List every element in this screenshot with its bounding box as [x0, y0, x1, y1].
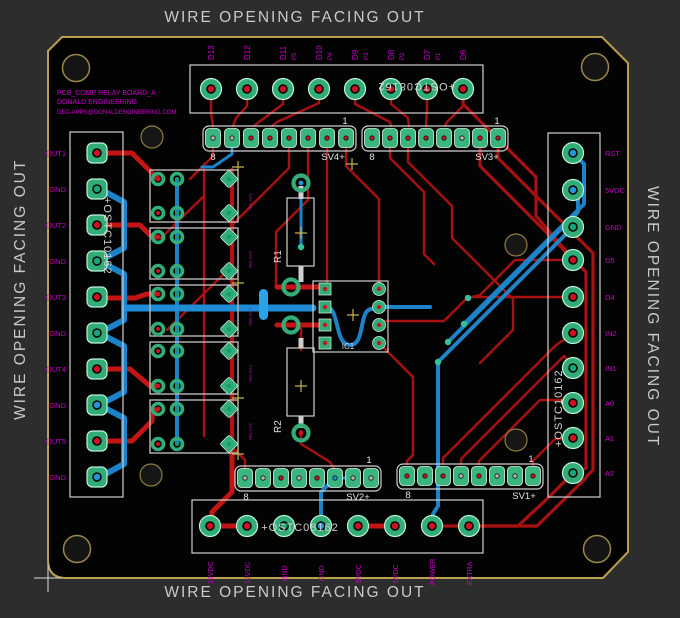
title-block-line1: PCB_COMP RELAY BOARD_A [57, 90, 156, 97]
svg-text:D5: D5 [605, 256, 615, 265]
sv1-pin1: 1 [528, 454, 533, 465]
svg-text:D11: D11 [279, 45, 288, 60]
svg-text:A1: A1 [605, 434, 614, 443]
sv2-pin1: 1 [366, 455, 371, 466]
svg-text:P1: P1 [436, 52, 442, 60]
svg-text:5VDC: 5VDC [605, 186, 626, 195]
svg-text:GND: GND [605, 223, 622, 232]
sv1-pin8: 8 [405, 490, 410, 501]
svg-text:EXTRA: EXTRA [467, 561, 474, 585]
svg-text:D7: D7 [423, 49, 432, 60]
edge-label-left: WIRE OPENING FACING OUT [12, 159, 29, 420]
svg-text:RELAY2: RELAY2 [248, 251, 253, 268]
svg-text:A2: A2 [605, 469, 614, 478]
sv2-pin8: 8 [243, 492, 248, 503]
svg-text:OUT5: OUT5 [46, 437, 66, 446]
svg-text:P2: P2 [400, 52, 406, 60]
svg-text:GND: GND [49, 329, 66, 338]
right-connector-part: +OSTC10162 [553, 369, 565, 447]
sv1-label: SV1+ [512, 491, 536, 502]
svg-text:A0: A0 [605, 399, 614, 408]
svg-text:GND: GND [49, 257, 66, 266]
svg-text:D13: D13 [207, 45, 216, 60]
svg-text:D4: D4 [605, 293, 615, 302]
ic1-designator: IC1 [342, 342, 355, 351]
svg-text:GND: GND [49, 401, 66, 410]
svg-text:IN1: IN1 [605, 364, 617, 373]
svg-text:OUT2: OUT2 [46, 221, 66, 230]
svg-text:GND: GND [49, 473, 66, 482]
svg-text:D8: D8 [387, 49, 396, 60]
title-block-line2: DONALD ENGINEERING [57, 99, 137, 106]
svg-text:RST: RST [605, 149, 620, 158]
pcb-layout-view: WIRE OPENING FACING OUT WIRE OPENING FAC… [0, 0, 680, 618]
top-connector-part: +OSTC08162 [377, 80, 455, 92]
svg-text:12VDC: 12VDC [208, 561, 215, 584]
edge-label-right: WIRE OPENING FACING OUT [644, 186, 661, 447]
svg-text:GND: GND [319, 565, 326, 581]
svg-text:RELAY3: RELAY3 [248, 308, 253, 325]
svg-text:P3: P3 [364, 52, 370, 60]
svg-text:RELAY5: RELAY5 [248, 423, 253, 440]
left-connector-part: +OSTC10162 [101, 197, 113, 275]
svg-text:GND: GND [49, 185, 66, 194]
r2-designator: R2 [273, 420, 284, 433]
svg-text:D6: D6 [459, 49, 468, 60]
svg-text:IN2: IN2 [605, 329, 617, 338]
svg-text:5VDC: 5VDC [393, 564, 400, 583]
svg-text:GND: GND [282, 565, 289, 581]
svg-text:P4: P4 [328, 52, 334, 60]
svg-text:OUT3: OUT3 [46, 293, 66, 302]
sv3-pin1: 1 [494, 116, 499, 127]
sv4-pin8: 8 [210, 152, 215, 163]
sv2-label: SV2+ [346, 492, 370, 503]
edge-label-bottom: WIRE OPENING FACING OUT [164, 584, 425, 601]
svg-text:RELAY4: RELAY4 [248, 365, 253, 382]
svg-text:POWER: POWER [430, 559, 437, 585]
sv4-pin1: 1 [342, 116, 347, 127]
svg-text:D10: D10 [315, 45, 324, 60]
r1-designator: R1 [273, 250, 284, 263]
title-block-line3: DEC-APPS@DONALDENGINEERING.COM [57, 110, 176, 116]
svg-text:12VDC: 12VDC [245, 561, 252, 584]
edge-label-top: WIRE OPENING FACING OUT [164, 9, 425, 26]
bottom-connector-part: +OSTC08162 [261, 522, 339, 534]
svg-text:D9: D9 [351, 49, 360, 60]
sv3-label: SV3+ [475, 152, 499, 163]
svg-text:OUT1: OUT1 [46, 149, 66, 158]
svg-text:RELAY1: RELAY1 [248, 193, 253, 210]
svg-text:D12: D12 [243, 45, 252, 60]
svg-text:P5: P5 [292, 52, 298, 60]
sv3-pin8: 8 [369, 152, 374, 163]
svg-text:5VDC: 5VDC [356, 564, 363, 583]
svg-text:OUT4: OUT4 [46, 365, 66, 374]
sv4-label: SV4+ [321, 152, 345, 163]
